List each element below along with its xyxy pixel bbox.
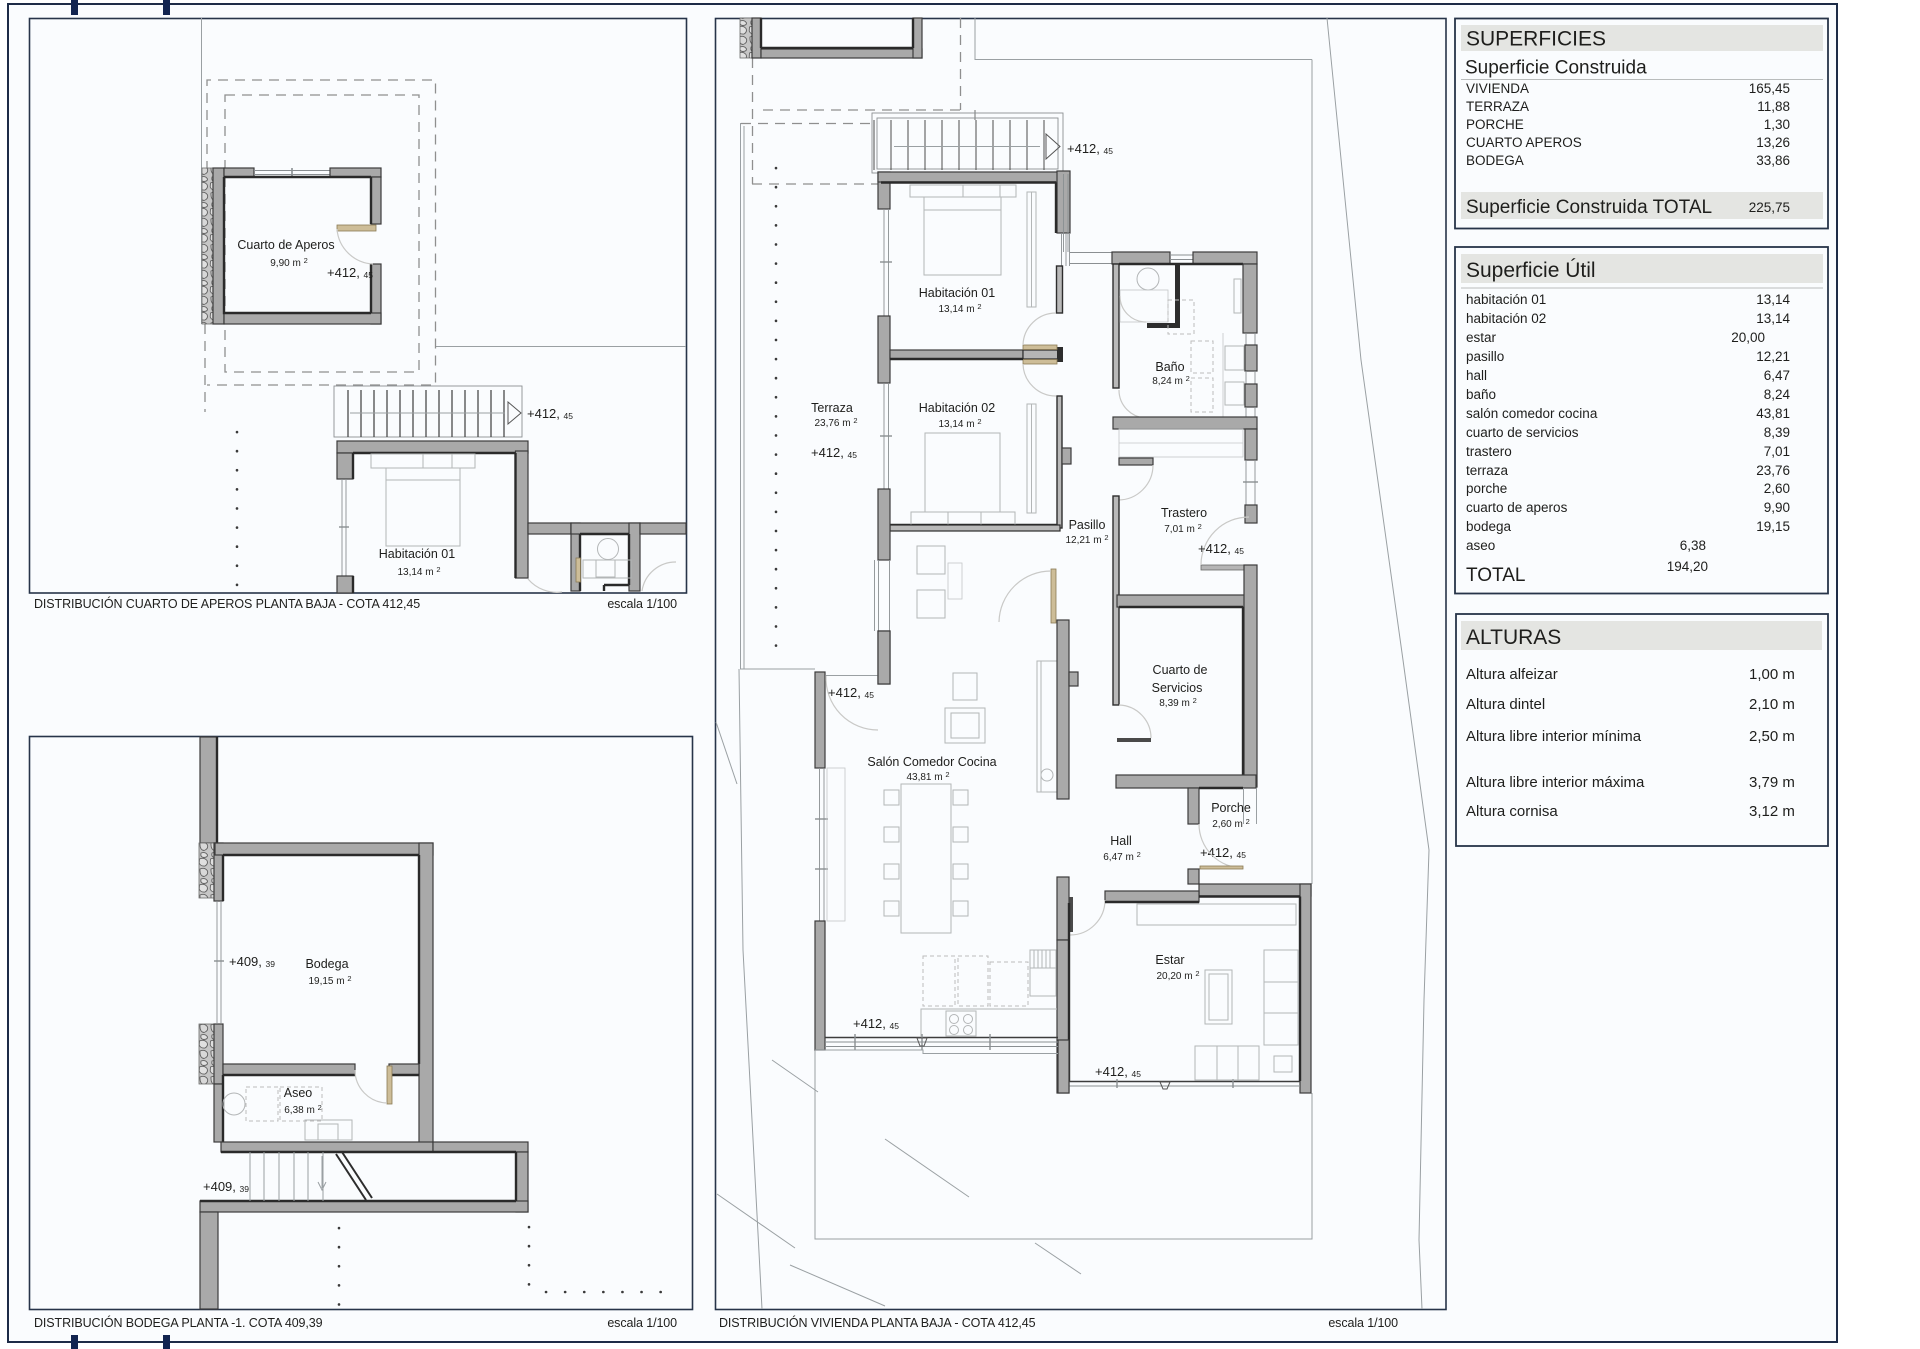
svg-text:trastero: trastero [1466,444,1512,459]
svg-text:habitación 02: habitación 02 [1466,311,1546,326]
svg-text:13,14: 13,14 [1756,311,1790,326]
svg-text:Superficie Construida TOTAL: Superficie Construida TOTAL [1466,197,1712,218]
svg-text:2,60: 2,60 [1764,481,1790,496]
svg-text:19,15: 19,15 [1756,519,1790,534]
svg-text:DISTRIBUCIÓN VIVIENDA PLANTA B: DISTRIBUCIÓN VIVIENDA PLANTA BAJA - COTA… [719,1315,1036,1330]
svg-text:12,21: 12,21 [1756,349,1790,364]
svg-text:Bodega: Bodega [305,957,348,971]
svg-text:8,39: 8,39 [1764,425,1790,440]
svg-text:hall: hall [1466,368,1487,383]
svg-text:20,20 m 2: 20,20 m 2 [1156,969,1199,982]
svg-text:165,45: 165,45 [1749,81,1790,96]
svg-text:TOTAL: TOTAL [1466,565,1525,586]
svg-text:aseo: aseo [1466,538,1495,553]
svg-text:Servicios: Servicios [1152,681,1203,695]
svg-text:escala 1/100: escala 1/100 [607,597,677,611]
svg-text:Cuarto de Aperos: Cuarto de Aperos [237,238,334,252]
svg-text:salón comedor cocina: salón comedor cocina [1466,406,1598,421]
svg-text:Aseo: Aseo [284,1086,313,1100]
svg-text:terraza: terraza [1466,463,1509,478]
svg-text:19,15 m 2: 19,15 m 2 [308,974,351,987]
svg-text:cuarto de aperos: cuarto de aperos [1466,500,1568,515]
svg-text:DISTRIBUCIÓN BODEGA PLANTA -1.: DISTRIBUCIÓN BODEGA PLANTA -1. COTA 409,… [34,1315,323,1330]
svg-text:habitación 01: habitación 01 [1466,292,1546,307]
svg-text:194,20: 194,20 [1667,559,1708,574]
svg-text:escala 1/100: escala 1/100 [607,1316,677,1330]
svg-text:6,38: 6,38 [1680,538,1706,553]
svg-text:11,88: 11,88 [1757,99,1790,114]
svg-text:7,01 m 2: 7,01 m 2 [1164,522,1202,535]
svg-text:pasillo: pasillo [1466,349,1504,364]
svg-text:CUARTO APEROS: CUARTO APEROS [1466,135,1582,150]
svg-text:9,90 m 2: 9,90 m 2 [270,256,308,269]
svg-text:Altura alfeizar: Altura alfeizar [1466,666,1558,683]
svg-text:Altura cornisa: Altura cornisa [1466,803,1558,820]
svg-text:2,60 m 2: 2,60 m 2 [1212,817,1250,830]
svg-text:2,50 m: 2,50 m [1749,728,1795,745]
svg-text:13,14 m 2: 13,14 m 2 [938,417,981,430]
svg-text:DISTRIBUCIÓN CUARTO DE APEROS: DISTRIBUCIÓN CUARTO DE APEROS PLANTA BAJ… [34,596,420,611]
svg-text:Hall: Hall [1110,834,1132,848]
svg-text:Terraza: Terraza [811,401,853,415]
svg-text:ALTURAS: ALTURAS [1466,626,1561,649]
svg-text:3,12 m: 3,12 m [1749,803,1795,820]
svg-text:Altura libre interior mínima: Altura libre interior mínima [1466,728,1642,745]
svg-text:13,14: 13,14 [1756,292,1790,307]
svg-text:6,47 m 2: 6,47 m 2 [1103,850,1141,863]
svg-text:Estar: Estar [1155,953,1184,967]
svg-text:Habitación 01: Habitación 01 [379,547,455,561]
svg-text:VIVIENDA: VIVIENDA [1466,81,1529,96]
svg-text:bodega: bodega [1466,519,1512,534]
svg-text:9,90: 9,90 [1764,500,1790,515]
svg-text:Superficie Útil: Superficie Útil [1466,259,1596,282]
svg-text:escala 1/100: escala 1/100 [1328,1316,1398,1330]
svg-text:13,26: 13,26 [1756,135,1790,150]
svg-text:baño: baño [1466,387,1496,402]
svg-text:23,76 m 2: 23,76 m 2 [814,416,857,429]
svg-text:Superficie Construida: Superficie Construida [1465,58,1647,79]
svg-text:43,81 m 2: 43,81 m 2 [906,770,949,783]
svg-text:225,75: 225,75 [1749,200,1790,215]
svg-text:Habitación 01: Habitación 01 [919,286,995,300]
svg-text:20,00: 20,00 [1731,330,1765,345]
svg-text:2,10 m: 2,10 m [1749,696,1795,713]
svg-text:Habitación 02: Habitación 02 [919,401,995,415]
svg-text:Cuarto de: Cuarto de [1153,663,1208,677]
svg-text:SUPERFICIES: SUPERFICIES [1466,28,1606,51]
svg-text:PORCHE: PORCHE [1466,117,1524,132]
svg-text:13,14 m 2: 13,14 m 2 [397,565,440,578]
svg-text:6,47: 6,47 [1764,368,1790,383]
svg-text:6,38 m 2: 6,38 m 2 [284,1103,322,1116]
svg-text:cuarto de servicios: cuarto de servicios [1466,425,1579,440]
svg-text:Pasillo: Pasillo [1069,518,1106,532]
svg-text:8,39 m 2: 8,39 m 2 [1159,696,1197,709]
svg-text:Altura dintel: Altura dintel [1466,696,1545,713]
svg-text:1,00 m: 1,00 m [1749,666,1795,683]
svg-text:BODEGA: BODEGA [1466,153,1524,168]
svg-text:Salón Comedor Cocina: Salón Comedor Cocina [867,755,996,769]
svg-text:8,24 m 2: 8,24 m 2 [1152,374,1190,387]
svg-text:3,79 m: 3,79 m [1749,774,1795,791]
svg-text:TERRAZA: TERRAZA [1466,99,1529,114]
svg-text:33,86: 33,86 [1756,153,1790,168]
svg-text:Trastero: Trastero [1161,506,1207,520]
svg-text:Baño: Baño [1155,360,1184,374]
svg-text:porche: porche [1466,481,1507,496]
svg-text:estar: estar [1466,330,1497,345]
svg-text:Porche: Porche [1211,801,1251,815]
svg-text:8,24: 8,24 [1764,387,1791,402]
svg-text:1,30: 1,30 [1764,117,1790,132]
svg-text:Altura libre interior máxima: Altura libre interior máxima [1466,774,1645,791]
svg-text:43,81: 43,81 [1756,406,1790,421]
svg-text:23,76: 23,76 [1756,463,1790,478]
svg-text:12,21 m 2: 12,21 m 2 [1065,533,1108,546]
svg-text:7,01: 7,01 [1764,444,1790,459]
svg-text:13,14 m 2: 13,14 m 2 [938,302,981,315]
